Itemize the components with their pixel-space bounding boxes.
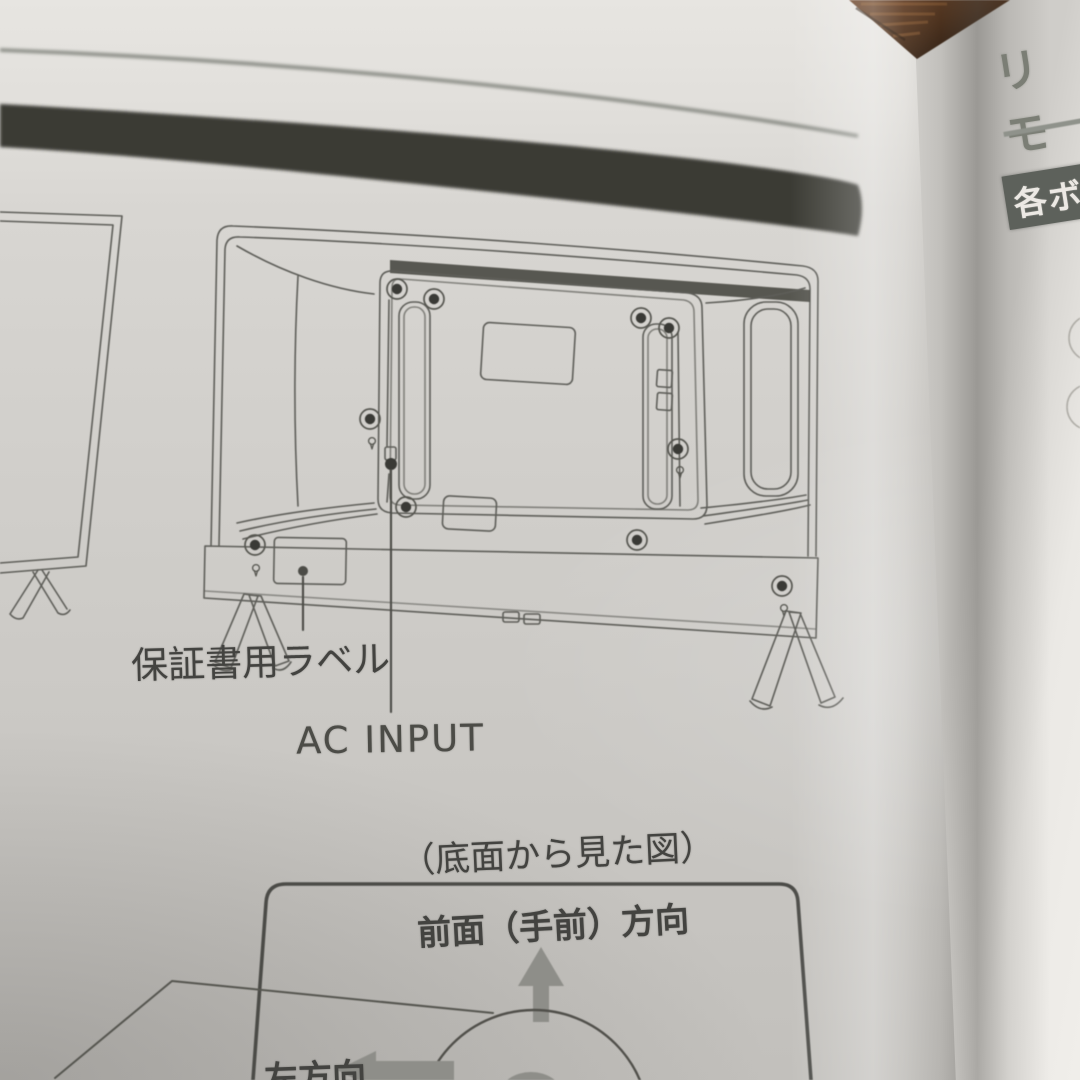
ac-input-label-text: AC INPUT	[296, 716, 486, 762]
panel-label-plate	[480, 322, 575, 385]
left-direction-label: 左方向	[263, 1048, 367, 1080]
warranty-label-plate	[274, 537, 347, 584]
stand-hub	[501, 1072, 561, 1080]
manual-photo: 保証書用ラベル AC INPUT （底面から見た図） 前面（手前）方向 左方向 …	[0, 0, 1080, 1080]
remote-buttons-partial	[1067, 315, 1080, 430]
tv-stand-band	[204, 535, 818, 638]
warranty-leader-dot	[298, 566, 308, 576]
right-page-section-badge-text: 各ボ	[1010, 167, 1080, 225]
warranty-label-text: 保証書用ラベル	[130, 629, 390, 690]
tv-front-partial-diagram	[0, 212, 122, 619]
